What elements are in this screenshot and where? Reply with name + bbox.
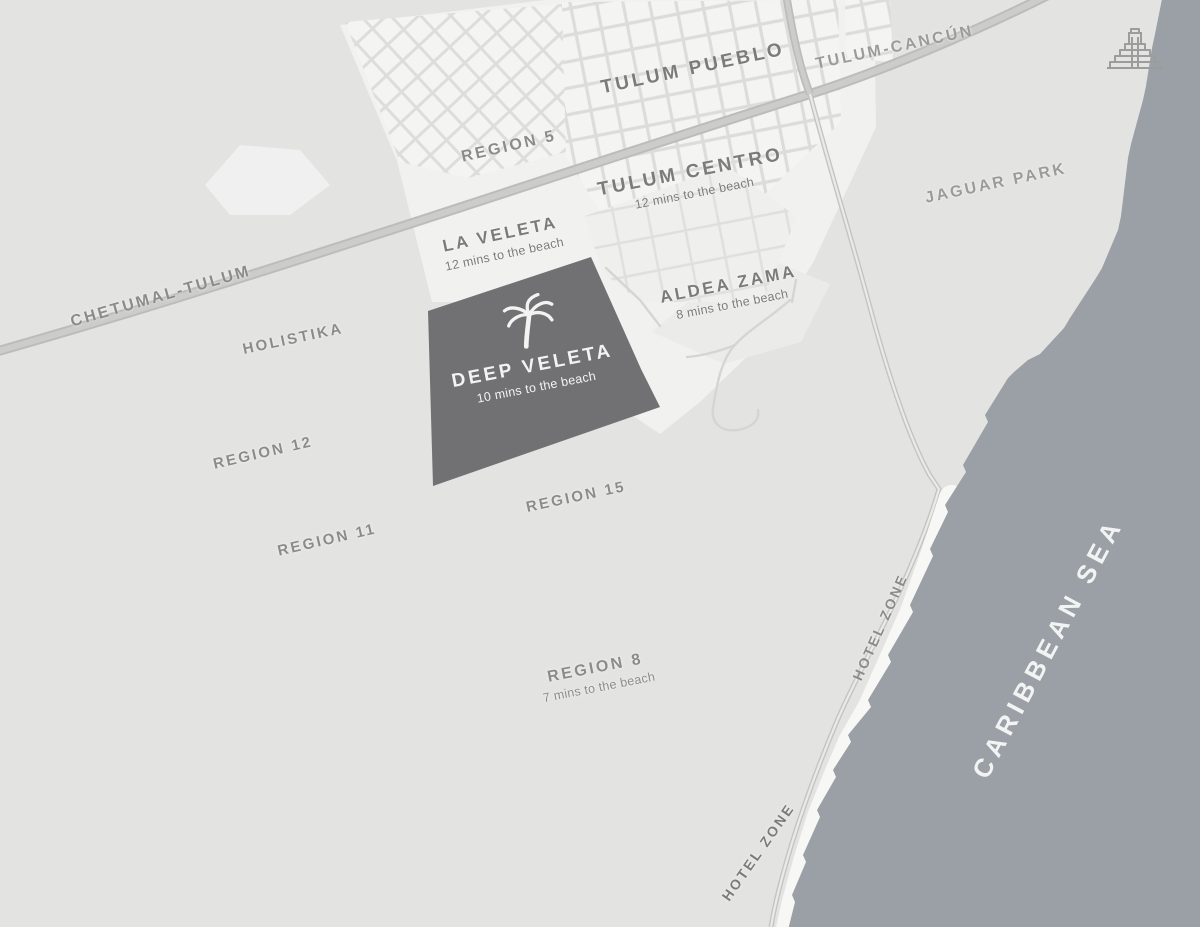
grid-northeast-blocks [845, 0, 893, 62]
map-canvas [0, 0, 1200, 927]
clearing-patch [205, 145, 330, 215]
tulum-area-map: TULUM PUEBLO TULUM-CANCÚN REGION 5 TULUM… [0, 0, 1200, 927]
grid-west-blocks [345, 4, 566, 178]
